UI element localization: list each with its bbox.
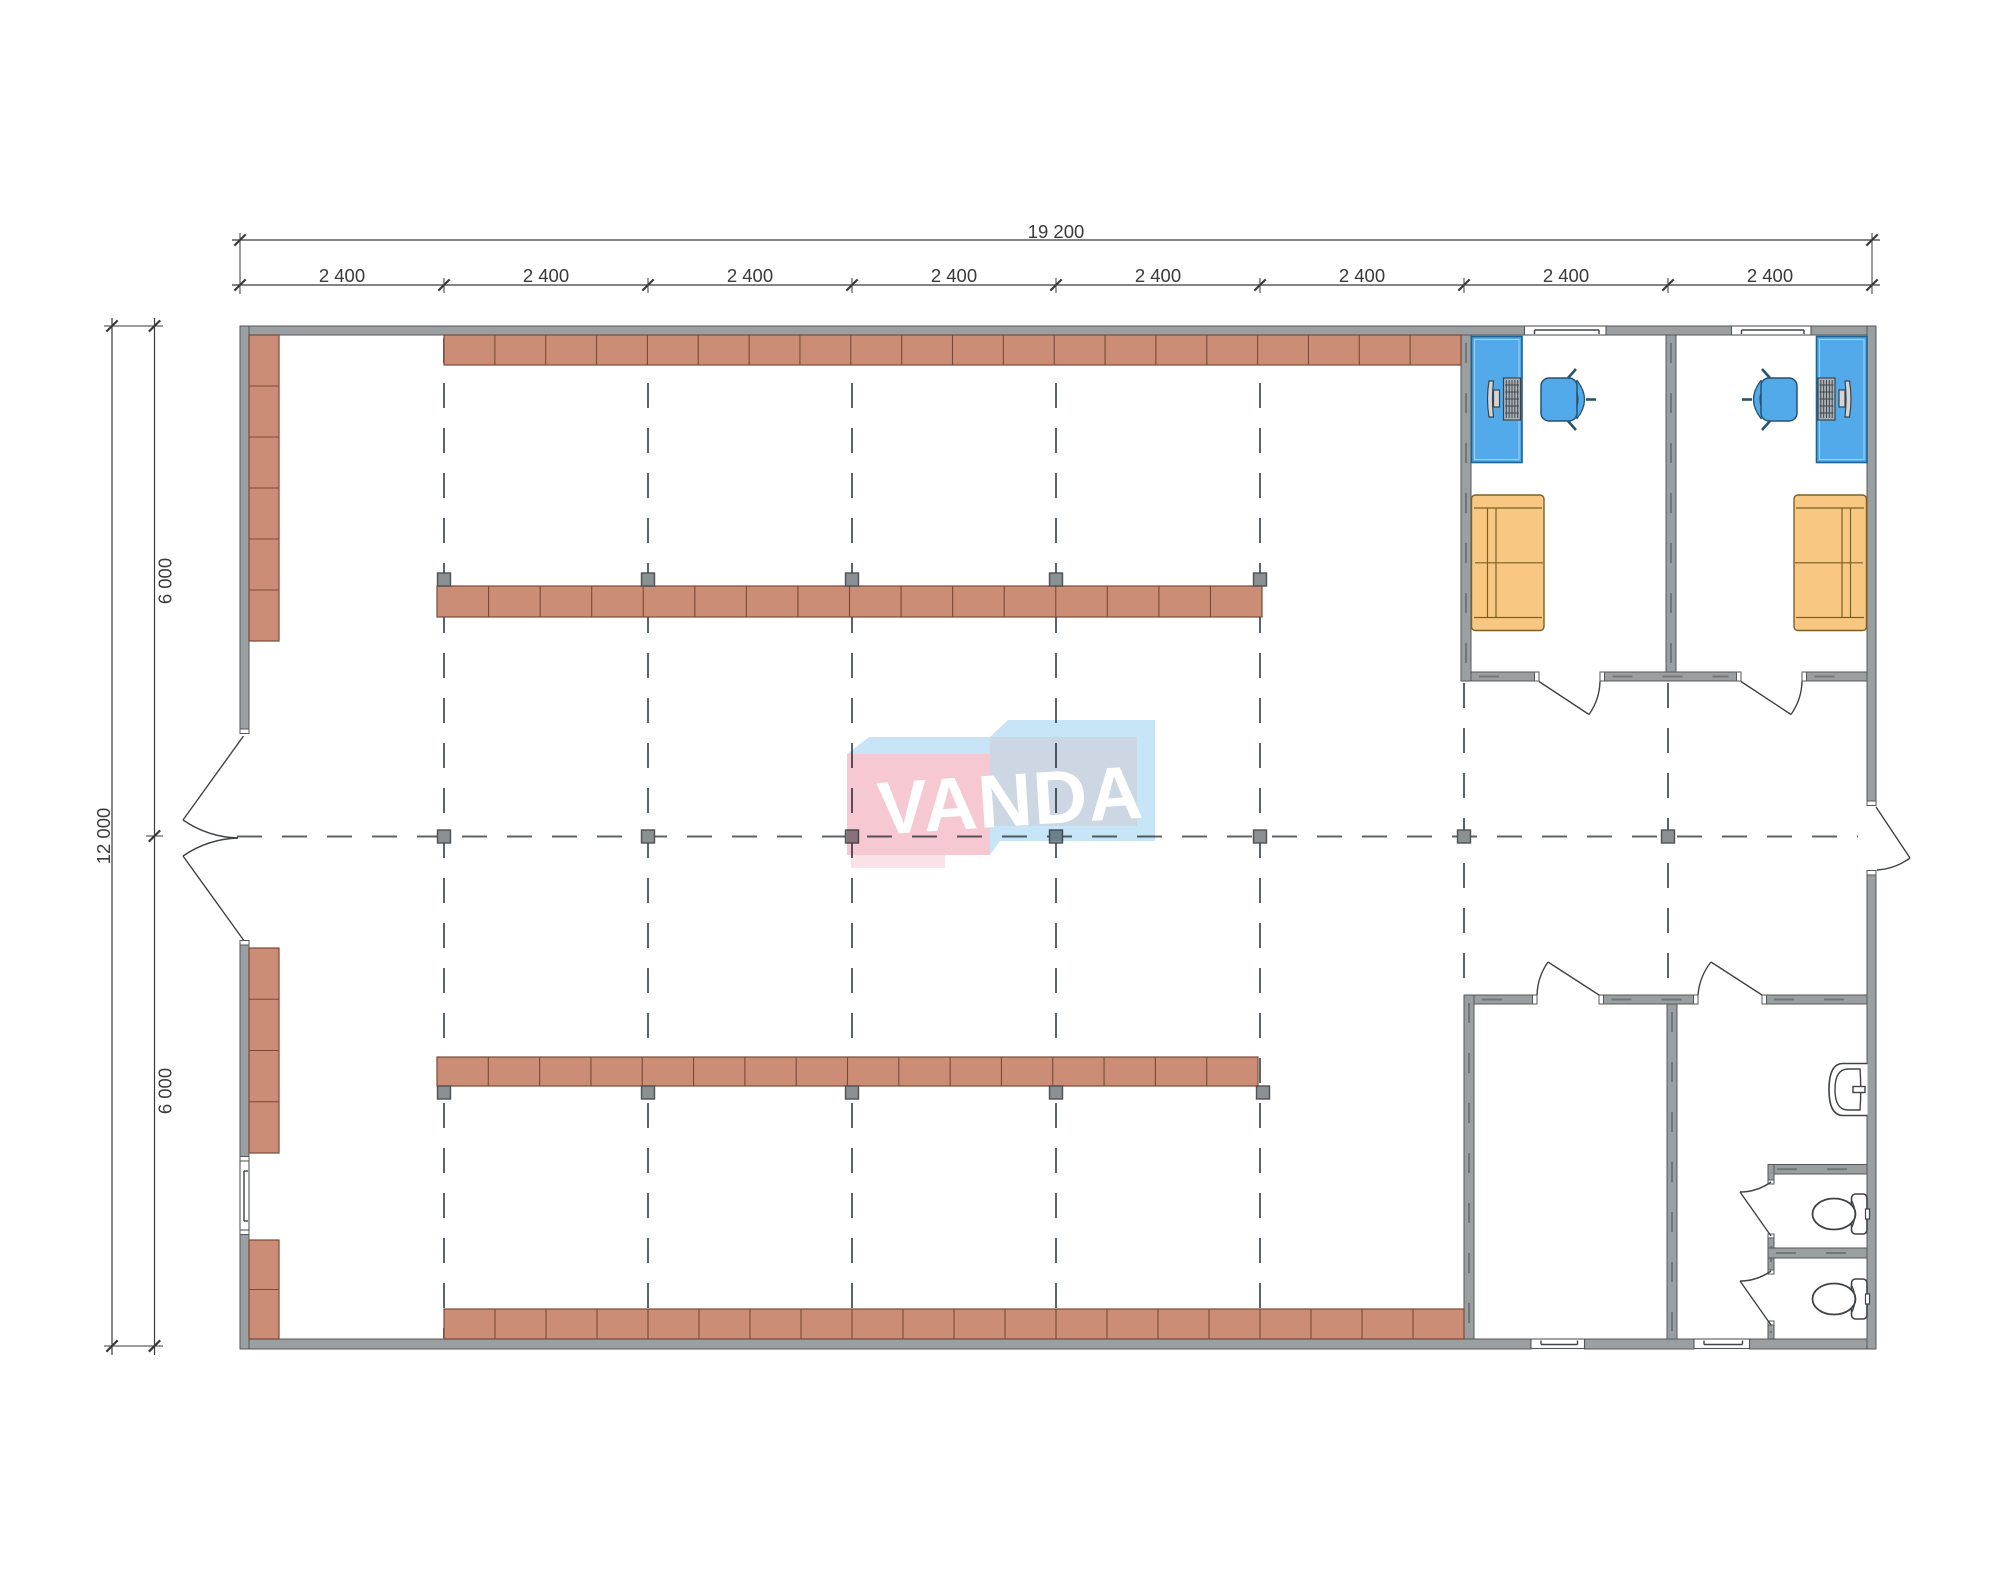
svg-text:12 000: 12 000 — [93, 808, 114, 865]
svg-text:2 400: 2 400 — [727, 265, 773, 286]
svg-text:6 000: 6 000 — [155, 1068, 176, 1114]
svg-text:2 400: 2 400 — [1543, 265, 1589, 286]
svg-text:2 400: 2 400 — [319, 265, 365, 286]
svg-text:2 400: 2 400 — [1339, 265, 1385, 286]
svg-text:2 400: 2 400 — [1135, 265, 1181, 286]
svg-text:2 400: 2 400 — [931, 265, 977, 286]
svg-text:6 000: 6 000 — [155, 558, 176, 604]
svg-text:VANDA: VANDA — [875, 750, 1146, 851]
svg-text:19 200: 19 200 — [1028, 221, 1085, 242]
svg-text:2 400: 2 400 — [1747, 265, 1793, 286]
svg-text:2 400: 2 400 — [523, 265, 569, 286]
